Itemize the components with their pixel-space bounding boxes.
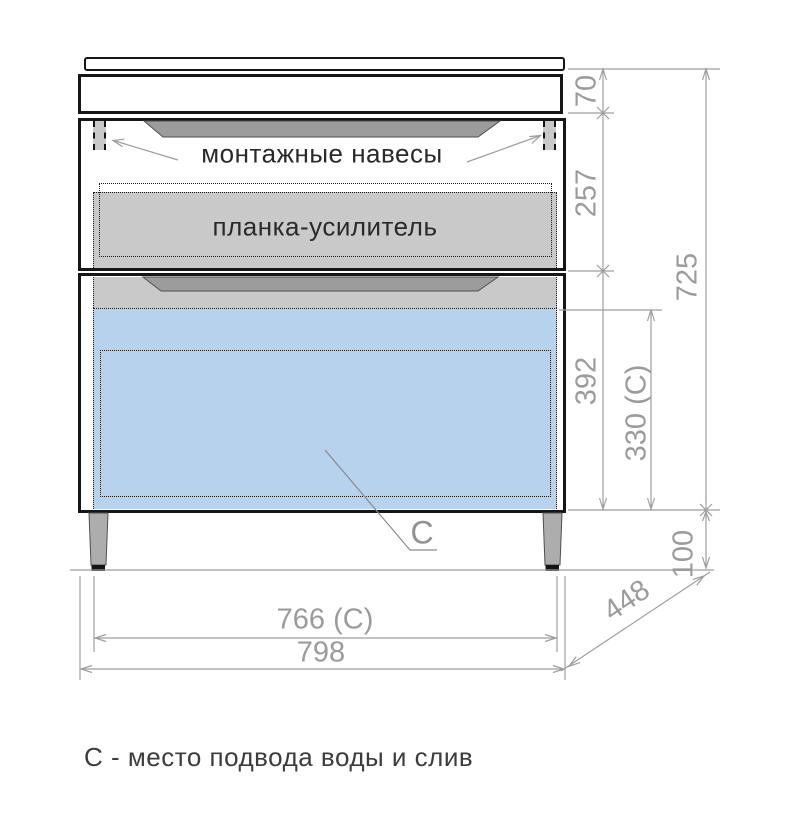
- mounting-hangers-label: монтажные навесы: [201, 139, 442, 170]
- vanity-cabinet-technical-drawing: монтажные навесы планка-усилитель С 70 2…: [0, 0, 800, 833]
- dim-body-height: 725: [672, 253, 705, 301]
- handle-recess-bottom: [143, 277, 498, 291]
- dim-upper-section-height: 257: [571, 169, 604, 217]
- dim-overall-width: 798: [297, 637, 345, 670]
- dimension-junction-marks: [597, 107, 712, 516]
- dim-lower-section-height: 392: [571, 357, 604, 405]
- reinforcement-plank-label: планка-усилитель: [213, 212, 438, 243]
- hanger-leader-left: [113, 139, 178, 160]
- dim-legs-height: 100: [668, 530, 701, 578]
- drawing-caption: С - место подвода воды и слив: [84, 742, 473, 773]
- handle-recess-top: [144, 121, 500, 137]
- hanger-leader-right: [467, 136, 541, 163]
- leg-right: [543, 513, 562, 571]
- dim-countertop-height: 70: [571, 75, 604, 107]
- leg-left: [89, 513, 108, 571]
- c-marker-label: С: [410, 515, 433, 552]
- dim-drain-zone-height: 330 (С): [621, 365, 654, 462]
- dim-drain-zone-width: 766 (С): [277, 604, 374, 637]
- drawing-lines-layer: [0, 0, 800, 833]
